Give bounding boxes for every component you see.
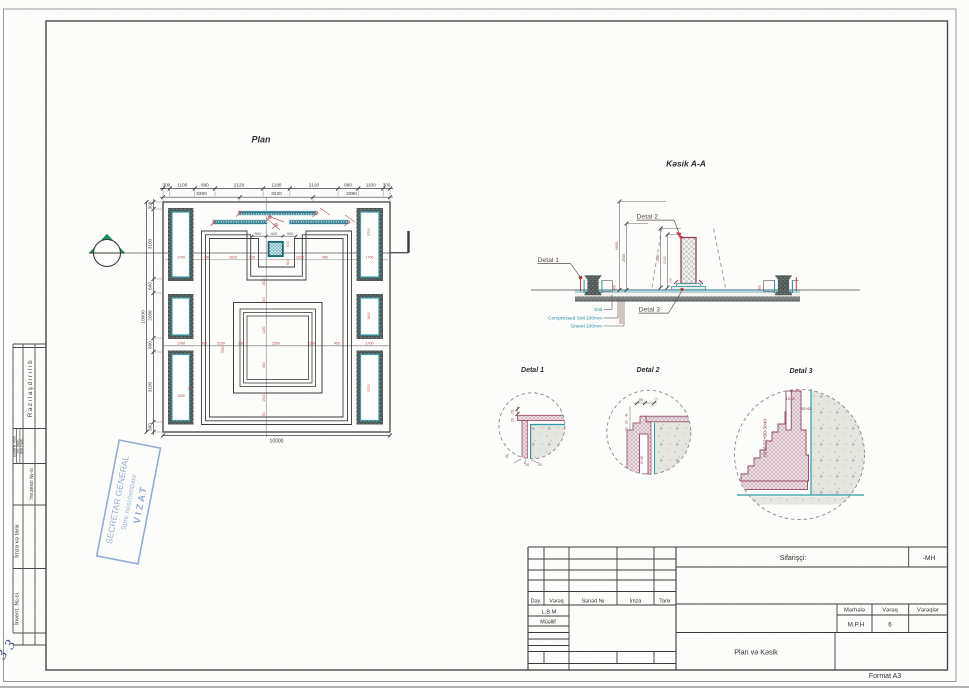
svg-text:Plan: Plan xyxy=(251,135,271,145)
svg-text:440: 440 xyxy=(595,282,599,287)
svg-text:2000: 2000 xyxy=(147,310,152,321)
svg-text:1150: 1150 xyxy=(307,342,315,346)
svg-text:40*45: 40*45 xyxy=(801,407,811,411)
svg-text:130: 130 xyxy=(669,278,673,283)
svg-text:2120: 2120 xyxy=(234,182,245,187)
svg-text:400: 400 xyxy=(613,285,617,291)
svg-text:600: 600 xyxy=(286,259,290,265)
svg-text:Detal 2: Detal 2 xyxy=(637,214,659,221)
svg-text:L.B.M: L.B.M xyxy=(542,610,557,616)
svg-text:20: 20 xyxy=(511,418,515,422)
svg-text:500: 500 xyxy=(287,232,293,236)
svg-text:1500: 1500 xyxy=(262,394,266,402)
svg-text:Sənəd №: Sənəd № xyxy=(582,599,605,605)
svg-text:1700: 1700 xyxy=(177,342,185,346)
svg-text:Vərəqlər: Vərəqlər xyxy=(917,608,939,614)
svg-text:Müəllif: Müəllif xyxy=(540,620,556,626)
svg-text:İnv.avəzi №-si: İnv.avəzi №-si xyxy=(28,468,35,499)
svg-text:890: 890 xyxy=(344,182,352,187)
svg-text:600: 600 xyxy=(271,232,277,236)
svg-text:450: 450 xyxy=(201,342,207,346)
svg-text:1100: 1100 xyxy=(366,182,376,187)
svg-text:600: 600 xyxy=(147,341,152,349)
svg-text:0038-52+80-3040: 0038-52+80-3040 xyxy=(763,419,769,457)
svg-text:2700: 2700 xyxy=(367,384,371,392)
svg-text:Sifarişçi:: Sifarişçi: xyxy=(780,555,807,562)
svg-text:Compressed Soil 100mm: Compressed Soil 100mm xyxy=(548,316,602,322)
svg-text:40: 40 xyxy=(625,413,629,417)
svg-text:3220: 3220 xyxy=(271,191,282,197)
svg-text:150: 150 xyxy=(262,412,266,418)
svg-text:1100: 1100 xyxy=(177,182,187,187)
svg-text:M.P.H: M.P.H xyxy=(848,622,864,629)
svg-text:2500: 2500 xyxy=(272,342,280,346)
svg-text:10000: 10000 xyxy=(270,439,284,445)
svg-text:4600: 4600 xyxy=(615,242,619,250)
svg-text:2430: 2430 xyxy=(656,254,660,262)
svg-text:1600: 1600 xyxy=(367,312,371,320)
svg-text:3390: 3390 xyxy=(346,191,357,197)
svg-text:Detal 3: Detal 3 xyxy=(639,307,661,314)
svg-text:50: 50 xyxy=(639,398,643,402)
svg-text:6: 6 xyxy=(888,622,892,629)
svg-text:130: 130 xyxy=(249,256,255,260)
svg-text:400: 400 xyxy=(758,285,762,291)
svg-text:700: 700 xyxy=(187,387,193,391)
svg-text:Tarix: Tarix xyxy=(659,599,671,605)
svg-text:300: 300 xyxy=(147,423,152,431)
svg-text:7500: 7500 xyxy=(221,346,225,353)
svg-text:20: 20 xyxy=(538,463,542,467)
svg-text:75: 75 xyxy=(654,398,658,402)
svg-text:1515: 1515 xyxy=(786,396,796,401)
svg-text:2120: 2120 xyxy=(309,182,320,187)
svg-text:600: 600 xyxy=(147,282,152,290)
svg-text:30: 30 xyxy=(625,420,629,424)
svg-text:-MH: -MH xyxy=(923,555,936,562)
svg-text:1150: 1150 xyxy=(217,342,225,346)
svg-text:1000: 1000 xyxy=(177,394,185,398)
svg-text:Detal 2: Detal 2 xyxy=(637,367,660,374)
svg-text:İmza: İmza xyxy=(630,598,642,605)
svg-text:300: 300 xyxy=(163,182,171,187)
svg-text:Format A3: Format A3 xyxy=(869,673,901,680)
svg-text:890: 890 xyxy=(201,182,209,187)
svg-text:450: 450 xyxy=(262,362,266,368)
svg-text:300: 300 xyxy=(383,182,391,187)
svg-text:20: 20 xyxy=(625,427,629,431)
svg-text:Dəy.: Dəy. xyxy=(531,599,542,605)
svg-text:Gravel 100mm: Gravel 100mm xyxy=(571,324,602,330)
svg-text:3100: 3100 xyxy=(147,381,152,392)
svg-text:130: 130 xyxy=(238,342,244,346)
svg-text:1500: 1500 xyxy=(262,278,266,286)
svg-text:500: 500 xyxy=(255,232,261,236)
svg-text:1620: 1620 xyxy=(229,256,237,260)
svg-text:Detal 1: Detal 1 xyxy=(538,257,560,264)
svg-text:1700: 1700 xyxy=(366,256,374,260)
svg-text:Detal 3: Detal 3 xyxy=(790,368,813,375)
svg-text:450: 450 xyxy=(204,256,210,260)
svg-text:Vərəq: Vərəq xyxy=(882,608,897,614)
svg-text:Detal 1: Detal 1 xyxy=(521,367,544,374)
svg-text:10000: 10000 xyxy=(140,310,146,324)
svg-text:1700: 1700 xyxy=(177,256,185,260)
svg-text:Mərhələ: Mərhələ xyxy=(844,608,865,614)
svg-text:Plan və Kəsik: Plan və Kəsik xyxy=(734,648,778,657)
svg-text:3390: 3390 xyxy=(196,191,207,197)
svg-text:300: 300 xyxy=(147,201,152,209)
svg-text:600: 600 xyxy=(286,241,290,247)
svg-text:Kəsik A-A: Kəsik A-A xyxy=(666,159,706,169)
svg-text:İnvent. №-si: İnvent. №-si xyxy=(13,593,20,625)
svg-text:450: 450 xyxy=(322,256,328,260)
svg-text:2700: 2700 xyxy=(367,228,371,236)
svg-text:WK müh.: WK müh. xyxy=(18,438,23,454)
svg-text:Vərəq: Vərəq xyxy=(549,599,563,605)
svg-text:20: 20 xyxy=(511,410,515,414)
svg-text:1150: 1150 xyxy=(262,326,266,333)
svg-text:İmza və tarix: İmza və tarix xyxy=(13,524,20,557)
svg-text:1620: 1620 xyxy=(296,256,304,260)
svg-text:20: 20 xyxy=(525,463,529,467)
svg-text:Soil: Soil xyxy=(594,307,602,313)
svg-text:2130: 2130 xyxy=(663,256,667,264)
svg-text:1700: 1700 xyxy=(366,342,374,346)
svg-text:0*45: 0*45 xyxy=(640,456,644,463)
svg-text:3100: 3100 xyxy=(147,238,152,249)
svg-text:600: 600 xyxy=(262,297,266,303)
svg-text:2930: 2930 xyxy=(622,254,626,262)
svg-text:1180: 1180 xyxy=(272,182,282,187)
svg-text:450: 450 xyxy=(334,342,340,346)
svg-text:Razılaşdırılıb: Razılaşdırılıb xyxy=(27,359,34,418)
